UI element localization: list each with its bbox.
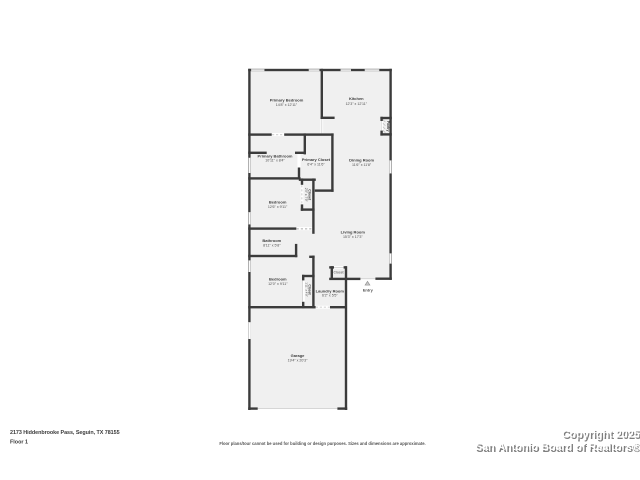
svg-text:Pantry: Pantry xyxy=(386,121,390,132)
svg-text:2173 Hiddenbrooke Pass, Seguin: 2173 Hiddenbrooke Pass, Seguin, TX 78155 xyxy=(10,430,120,436)
svg-text:Primary Closet: Primary Closet xyxy=(302,157,331,162)
svg-text:10'11" x 8'4": 10'11" x 8'4" xyxy=(265,159,285,163)
svg-text:Dining Room: Dining Room xyxy=(349,158,374,163)
svg-text:Kitchen: Kitchen xyxy=(349,96,364,101)
svg-text:Entry: Entry xyxy=(363,287,374,292)
svg-text:14'8" x 12'11": 14'8" x 12'11" xyxy=(276,103,298,107)
svg-text:19'4" x 20'3": 19'4" x 20'3" xyxy=(288,359,308,363)
svg-text:1'11" x 4'9": 1'11" x 4'9" xyxy=(305,282,309,297)
svg-text:Bathroom: Bathroom xyxy=(262,238,281,243)
svg-text:San Antonio Board of Realtors®: San Antonio Board of Realtors® xyxy=(475,441,640,453)
svg-text:12'6" x 9'11": 12'6" x 9'11" xyxy=(268,205,288,209)
svg-text:Floor 1: Floor 1 xyxy=(10,440,28,446)
svg-text:2'5" x 7'9": 2'5" x 7'9" xyxy=(304,188,308,202)
svg-text:Bedroom: Bedroom xyxy=(269,200,287,205)
svg-text:15'3" x 17'3": 15'3" x 17'3" xyxy=(343,235,363,239)
svg-text:6'2" x 5'5": 6'2" x 5'5" xyxy=(322,294,338,298)
svg-text:Living Room: Living Room xyxy=(341,230,366,235)
svg-text:Bedroom: Bedroom xyxy=(269,277,287,282)
svg-text:8'11" x 5'8": 8'11" x 5'8" xyxy=(263,243,281,247)
svg-text:6'4" x 11'6": 6'4" x 11'6" xyxy=(307,162,325,166)
svg-text:12'3" x 12'11": 12'3" x 12'11" xyxy=(346,102,368,106)
svg-text:Closet: Closet xyxy=(334,271,345,275)
svg-text:12'0" x 9'11": 12'0" x 9'11" xyxy=(268,282,288,286)
svg-text:Floor plans/tour cannot be use: Floor plans/tour cannot be used for buil… xyxy=(219,441,425,446)
svg-text:Laundry Room: Laundry Room xyxy=(316,288,345,293)
svg-text:Primary Bedroom: Primary Bedroom xyxy=(270,97,304,102)
svg-text:11'6" x 11'8": 11'6" x 11'8" xyxy=(352,163,372,167)
svg-text:Garage: Garage xyxy=(291,353,306,358)
svg-text:Copyright 2025: Copyright 2025 xyxy=(562,428,640,440)
